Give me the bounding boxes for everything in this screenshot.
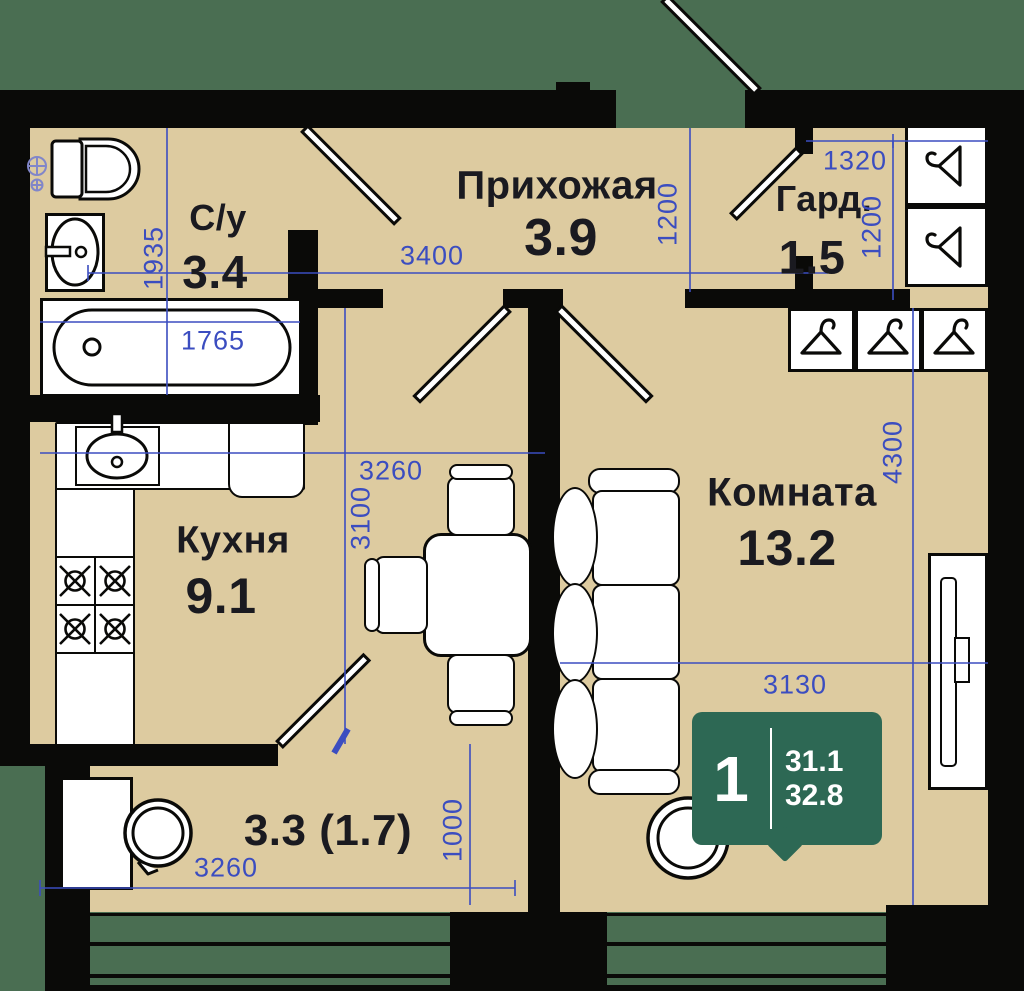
unit-area-living: 31.1 — [785, 745, 843, 779]
wall-top-right — [745, 90, 1024, 128]
stove-cell — [55, 604, 96, 654]
wall-top-bump — [556, 82, 590, 90]
sofa-back-cushion — [552, 583, 598, 683]
room-label-kitchen: Кухня — [176, 520, 290, 563]
bathtub — [40, 298, 302, 397]
room-label-bathroom: С/у — [189, 197, 247, 239]
chair-left — [374, 556, 428, 634]
room-area-wardrobe: 1.5 — [779, 230, 846, 285]
dining-table — [423, 533, 532, 657]
room-label-hallway: Прихожая — [456, 164, 657, 209]
dim-balcony-width: 3260 — [194, 853, 258, 884]
dim-bathtub-length: 1765 — [181, 326, 245, 357]
wall-right — [988, 90, 1024, 991]
stove-cell — [55, 556, 96, 606]
balcony-glazing-left — [90, 913, 450, 991]
dim-kitchen-width: 3260 — [359, 456, 423, 487]
dim-balcony-depth: 1000 — [438, 798, 469, 862]
room-area-balcony: 3.3 (1.7) — [244, 806, 412, 856]
closet-cell — [921, 308, 988, 372]
wall-hall-bottom-left — [288, 289, 383, 308]
dim-wardrobe-width: 1320 — [823, 146, 887, 177]
closet-cell — [905, 206, 988, 287]
closet-cell — [855, 308, 922, 372]
dim-hallway-depth: 1200 — [653, 182, 684, 246]
wall-kitchen-balcony — [0, 744, 278, 766]
kitchen-sink-box — [75, 426, 160, 486]
tv-bracket — [954, 637, 970, 683]
room-area-hallway: 3.9 — [524, 208, 598, 268]
wall-top-left — [0, 90, 616, 128]
wall-balcony-pillar-mid — [450, 912, 607, 991]
exterior-patch — [0, 765, 45, 991]
chair-bottom — [447, 654, 515, 714]
stove-cell — [94, 604, 135, 654]
dim-kitchen-depth: 3100 — [346, 486, 377, 550]
closet-cell — [905, 125, 988, 206]
dim-room-width: 3130 — [763, 670, 827, 701]
chair-top-back — [449, 464, 513, 480]
unit-rooms-count: 1 — [692, 712, 770, 845]
unit-area-total: 32.8 — [785, 779, 843, 813]
bath-sink — [45, 213, 105, 292]
room-area-bathroom: 3.4 — [182, 245, 247, 299]
room-label-room: Комната — [707, 471, 877, 516]
dim-wardrobe-depth: 1200 — [857, 195, 888, 259]
wall-hall-t-cap — [503, 289, 563, 308]
dim-room-length: 4300 — [878, 420, 909, 484]
chair-bottom-back — [449, 710, 513, 726]
sofa-seat — [592, 678, 680, 773]
floor-plan: С/у 3.4 Прихожая 3.9 Гард. 1.5 Кухня 9.1… — [0, 0, 1024, 991]
dim-hallway-width: 3400 — [400, 241, 464, 272]
sofa-seat — [592, 584, 680, 680]
chair-top — [447, 476, 515, 536]
chair-left-back — [364, 558, 380, 632]
stove-cell — [94, 556, 135, 606]
dim-bathroom-width: 1935 — [139, 226, 170, 290]
balcony-glazing-right — [607, 913, 886, 991]
sofa-back-cushion — [552, 679, 598, 779]
sofa-seat — [592, 490, 680, 586]
closet-cell — [788, 308, 855, 372]
fridge — [228, 422, 305, 498]
sofa-armrest-bottom — [588, 769, 680, 795]
washing-machine — [60, 777, 133, 890]
sofa-back-cushion — [552, 487, 598, 587]
wall-left — [0, 90, 30, 765]
room-area-kitchen: 9.1 — [185, 567, 256, 625]
entry-door-leaf — [662, 0, 760, 94]
wall-bathroom-bottom — [30, 395, 320, 422]
wall-corner-bottom-right — [886, 905, 1024, 991]
unit-badge[interactable]: 1 31.1 32.8 — [692, 712, 882, 845]
wall-wardrobe-stub-top — [795, 128, 813, 154]
room-area-room: 13.2 — [737, 519, 836, 577]
